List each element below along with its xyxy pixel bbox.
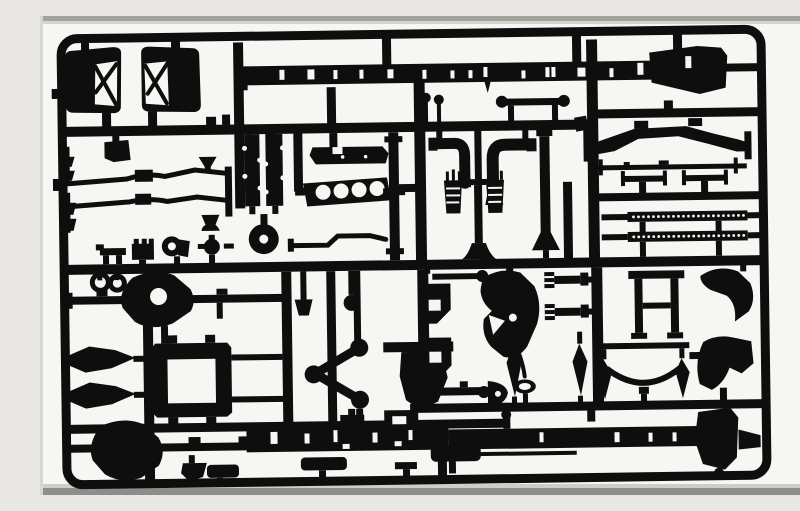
sprue-photo bbox=[40, 16, 800, 495]
sprue-svg bbox=[40, 16, 800, 495]
photo-edge-strip bbox=[40, 488, 800, 495]
part-small-wedge-part bbox=[574, 116, 588, 132]
sprue-runner bbox=[563, 182, 573, 262]
photo-edge-strip bbox=[40, 16, 800, 21]
photo-edge-strip bbox=[40, 16, 43, 495]
part-air-cleaner-1 bbox=[444, 169, 463, 213]
sprue-runner bbox=[664, 100, 673, 110]
sprue-runner bbox=[587, 409, 595, 421]
sprue-runner bbox=[572, 36, 581, 66]
sprue-runner bbox=[725, 63, 761, 72]
sprue-runner bbox=[382, 38, 391, 66]
photo-edge-strip bbox=[40, 21, 800, 24]
part-air-cleaner-2 bbox=[486, 169, 505, 213]
sprue-runner bbox=[327, 87, 337, 127]
sprue-runner bbox=[673, 30, 682, 50]
sprue-runner bbox=[293, 130, 303, 192]
